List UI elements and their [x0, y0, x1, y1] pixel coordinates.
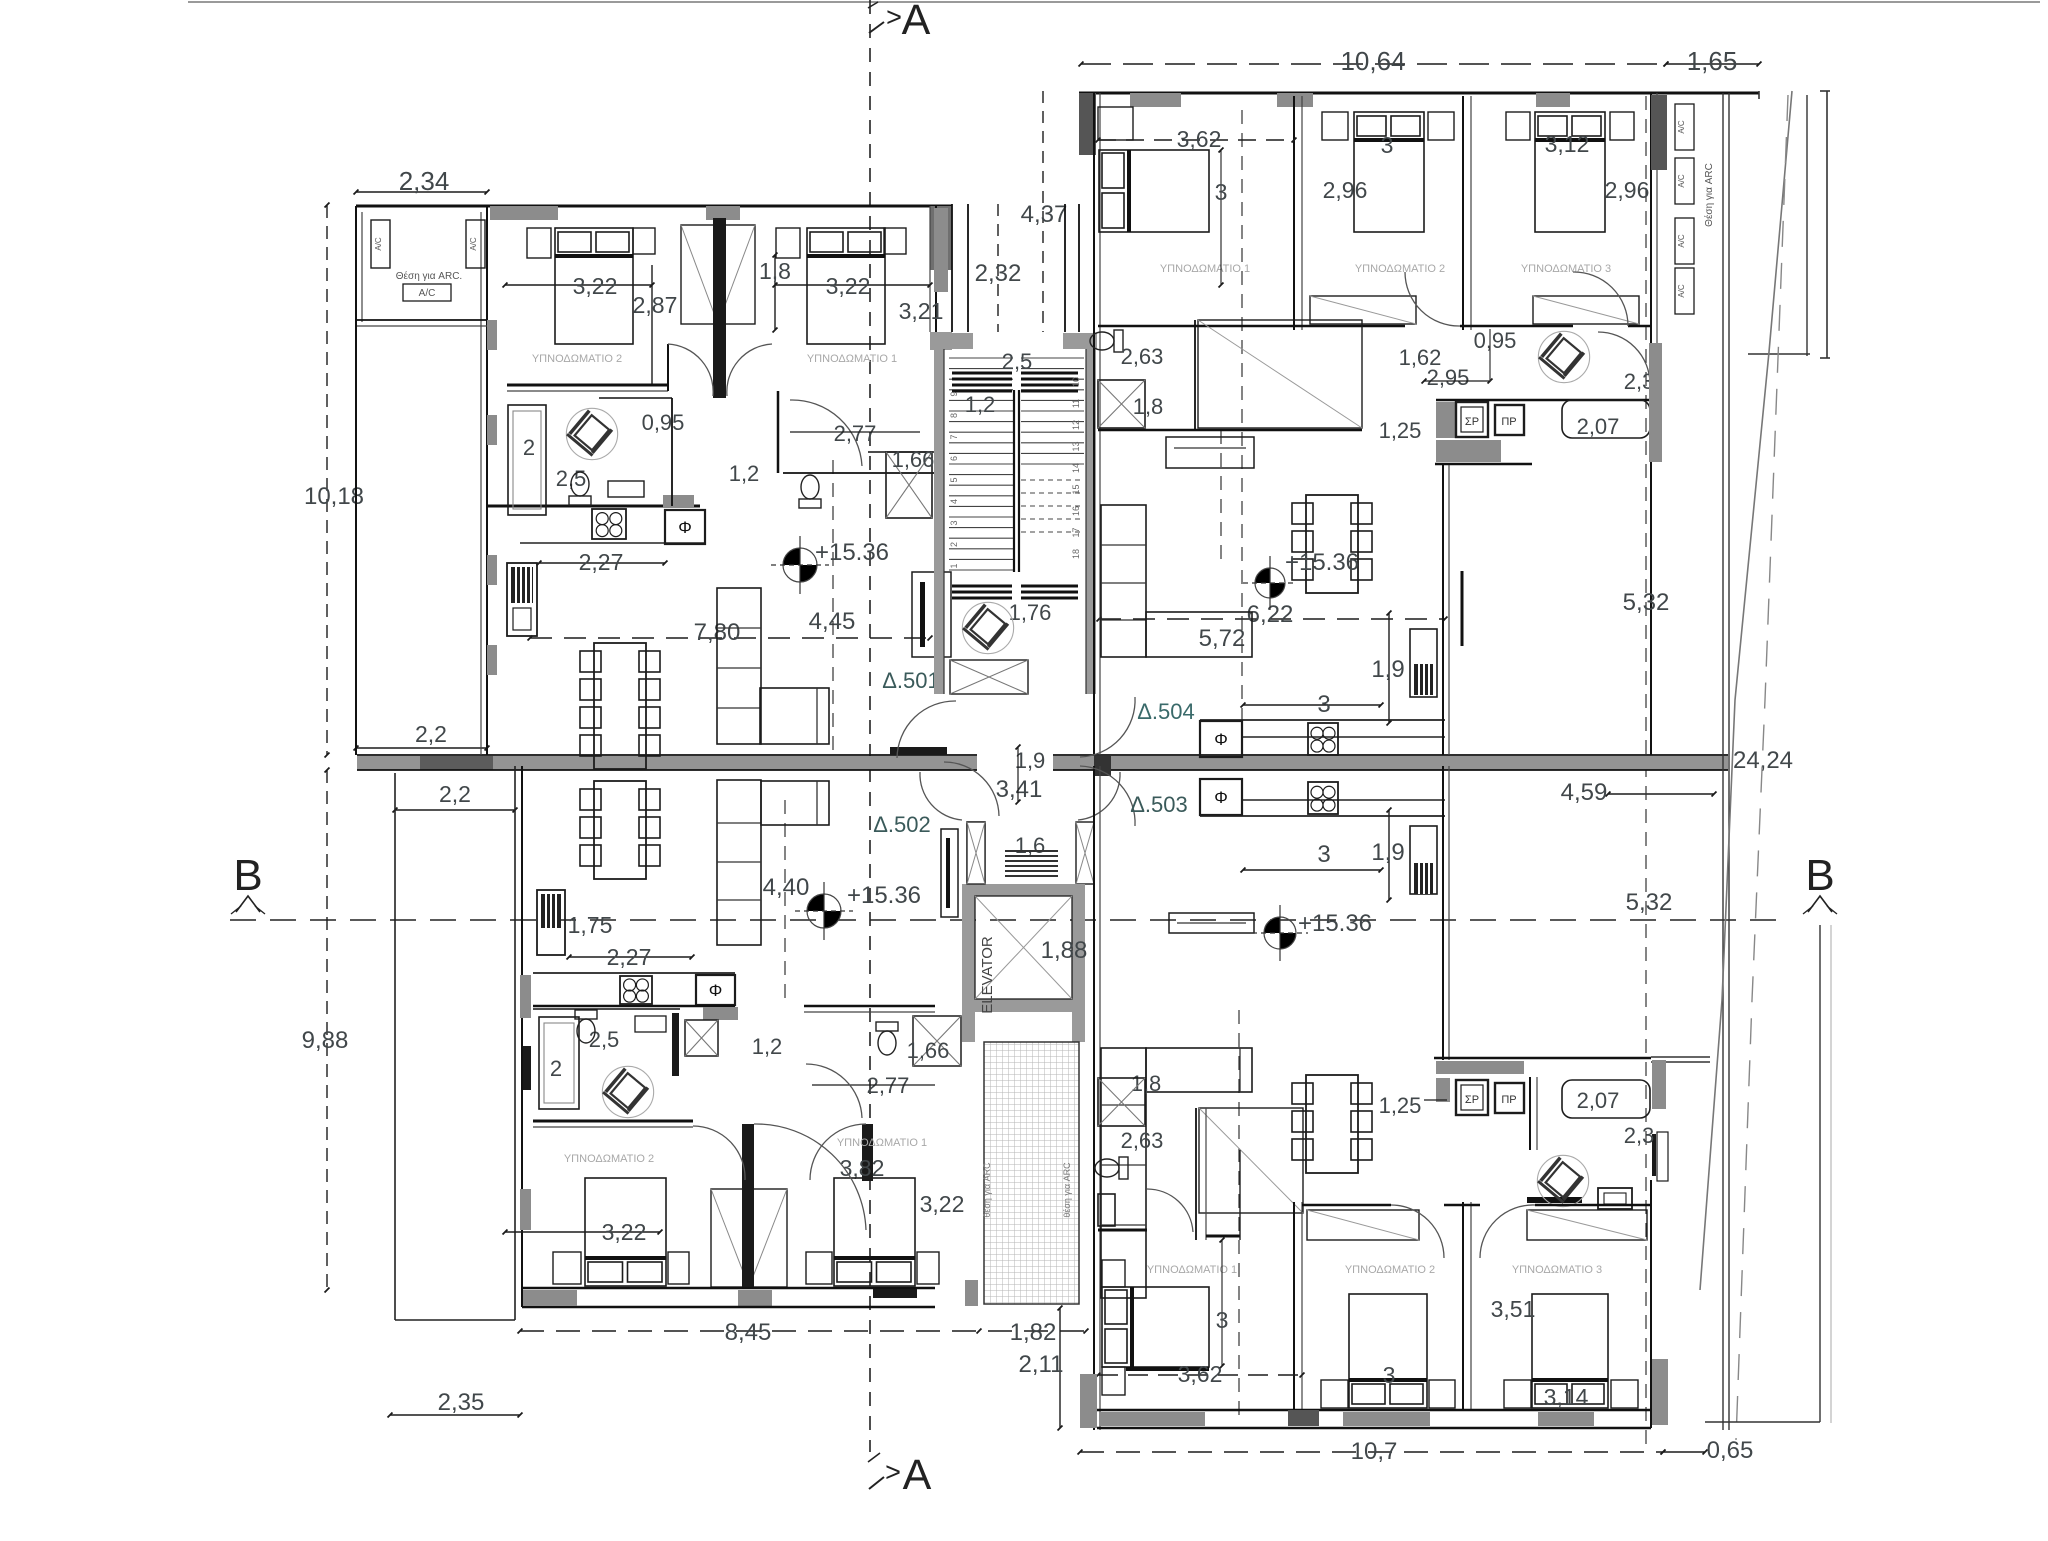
svg-text:7: 7	[949, 434, 959, 439]
svg-text:1,88: 1,88	[1041, 937, 1088, 964]
svg-text:4,45: 4,45	[809, 608, 856, 635]
svg-text:2,27: 2,27	[607, 944, 652, 970]
svg-text:0,65: 0,65	[1707, 1437, 1754, 1464]
svg-text:2: 2	[550, 1056, 562, 1081]
svg-text:ELEVATOR: ELEVATOR	[979, 936, 996, 1014]
svg-text:1,2: 1,2	[752, 1034, 783, 1059]
svg-text:3,82: 3,82	[840, 1155, 885, 1181]
svg-text:2,32: 2,32	[975, 260, 1022, 287]
svg-text:3,41: 3,41	[996, 776, 1043, 803]
svg-text:+15.36: +15.36	[815, 539, 889, 566]
svg-text:θέση για ARC: θέση για ARC	[1062, 1162, 1072, 1218]
svg-text:2,2: 2,2	[415, 721, 447, 747]
svg-text:2,07: 2,07	[1577, 1088, 1620, 1113]
svg-text:2,87: 2,87	[633, 292, 678, 318]
svg-text:3,62: 3,62	[1177, 126, 1222, 152]
svg-text:1,6: 1,6	[1015, 833, 1046, 858]
svg-text:>: >	[885, 1457, 901, 1487]
svg-text:18: 18	[1071, 549, 1081, 559]
svg-text:3,14: 3,14	[1544, 1384, 1589, 1410]
svg-text:2,63: 2,63	[1121, 1128, 1164, 1153]
svg-text:2,27: 2,27	[579, 549, 624, 575]
svg-text:>: >	[886, 2, 902, 32]
svg-text:3,12: 3,12	[1545, 131, 1590, 157]
svg-text:+15.36: +15.36	[1298, 910, 1372, 937]
svg-text:2,5: 2,5	[589, 1027, 620, 1052]
svg-text:ΠΡ: ΠΡ	[1501, 1094, 1516, 1106]
svg-text:1,8: 1,8	[759, 258, 791, 284]
svg-text:3: 3	[1317, 841, 1330, 868]
svg-text:θέση για ARC: θέση για ARC	[982, 1162, 992, 1218]
svg-text:A/C: A/C	[1677, 174, 1686, 188]
svg-text:3,62: 3,62	[1178, 1361, 1223, 1387]
svg-text:11: 11	[1071, 399, 1081, 408]
svg-text:2,34: 2,34	[399, 166, 450, 196]
svg-text:ΠΡ: ΠΡ	[1501, 416, 1516, 428]
svg-text:1,25: 1,25	[1379, 418, 1422, 443]
svg-text:4,40: 4,40	[763, 874, 810, 901]
svg-text:+15.36: +15.36	[1285, 549, 1359, 576]
svg-text:1,66: 1,66	[907, 1038, 950, 1063]
svg-text:1,65: 1,65	[1687, 46, 1738, 76]
svg-text:ΥΠΝΟΔΩΜΑΤΙΟ 1: ΥΠΝΟΔΩΜΑΤΙΟ 1	[807, 353, 897, 365]
svg-text:3: 3	[949, 520, 959, 525]
svg-text:2,63: 2,63	[1121, 344, 1164, 369]
svg-text:1,75: 1,75	[568, 912, 613, 938]
svg-text:1,9: 1,9	[1371, 656, 1404, 683]
svg-text:3,22: 3,22	[826, 273, 871, 299]
svg-text:3,22: 3,22	[573, 273, 618, 299]
svg-text:1,8: 1,8	[1133, 394, 1164, 419]
svg-text:Θέση για ARC.: Θέση για ARC.	[396, 270, 462, 282]
svg-text:2,35: 2,35	[438, 1389, 485, 1416]
svg-text:1,76: 1,76	[1009, 600, 1052, 625]
svg-text:A/C: A/C	[1677, 234, 1686, 248]
svg-text:2,07: 2,07	[1577, 414, 1620, 439]
svg-text:Δ.502: Δ.502	[873, 812, 931, 837]
svg-text:1: 1	[949, 563, 959, 568]
svg-text:16: 16	[1071, 506, 1081, 516]
svg-text:B: B	[1805, 851, 1834, 900]
svg-text:A/C: A/C	[374, 237, 383, 251]
svg-text:Δ.503: Δ.503	[1130, 792, 1188, 817]
svg-text:1,9: 1,9	[1015, 748, 1046, 773]
svg-text:A: A	[903, 1451, 932, 1499]
svg-text:13: 13	[1071, 441, 1081, 451]
svg-text:0,95: 0,95	[642, 410, 685, 435]
svg-text:10: 10	[1071, 377, 1081, 387]
svg-text:14: 14	[1071, 463, 1081, 473]
svg-text:3: 3	[1317, 691, 1330, 718]
svg-text:2,11: 2,11	[1019, 1351, 1064, 1378]
svg-text:Φ: Φ	[678, 518, 692, 537]
svg-text:5,72: 5,72	[1199, 625, 1246, 652]
svg-text:3: 3	[1383, 1362, 1396, 1388]
svg-text:5,32: 5,32	[1626, 889, 1673, 916]
svg-text:ΣΡ: ΣΡ	[1465, 1094, 1479, 1106]
svg-text:ΥΠΝΟΔΩΜΑΤΙΟ 2: ΥΠΝΟΔΩΜΑΤΙΟ 2	[1355, 263, 1445, 275]
svg-text:ΥΠΝΟΔΩΜΑΤΙΟ 2: ΥΠΝΟΔΩΜΑΤΙΟ 2	[532, 353, 622, 365]
svg-text:4: 4	[949, 499, 959, 504]
svg-text:2,2: 2,2	[439, 781, 471, 807]
svg-text:2,96: 2,96	[1605, 177, 1650, 203]
svg-text:Φ: Φ	[709, 981, 723, 1000]
svg-text:2,3: 2,3	[1624, 1123, 1655, 1148]
svg-text:1,66: 1,66	[892, 447, 935, 472]
svg-text:1,25: 1,25	[1379, 1093, 1422, 1118]
svg-text:2,5: 2,5	[1002, 349, 1033, 374]
svg-text:2: 2	[949, 542, 959, 547]
svg-text:2,77: 2,77	[834, 421, 877, 446]
svg-text:3: 3	[1216, 1307, 1229, 1333]
svg-text:ΥΠΝΟΔΩΜΑΤΙΟ 1: ΥΠΝΟΔΩΜΑΤΙΟ 1	[1160, 263, 1250, 275]
svg-text:ΣΡ: ΣΡ	[1465, 416, 1479, 428]
svg-text:Δ.501: Δ.501	[882, 668, 940, 693]
svg-text:10,7: 10,7	[1351, 1438, 1398, 1465]
svg-text:ΥΠΝΟΔΩΜΑΤΙΟ 1: ΥΠΝΟΔΩΜΑΤΙΟ 1	[1147, 1264, 1237, 1276]
svg-text:3: 3	[1381, 132, 1394, 158]
svg-text:1,82: 1,82	[1010, 1319, 1057, 1346]
svg-text:4,59: 4,59	[1561, 779, 1608, 806]
svg-text:8,45: 8,45	[725, 1319, 772, 1346]
svg-text:3,22: 3,22	[920, 1191, 965, 1217]
svg-text:ΥΠΝΟΔΩΜΑΤΙΟ 2: ΥΠΝΟΔΩΜΑΤΙΟ 2	[1345, 1264, 1435, 1276]
svg-text:A/C: A/C	[1677, 120, 1686, 134]
svg-text:Δ.504: Δ.504	[1137, 699, 1195, 724]
svg-text:ΥΠΝΟΔΩΜΑΤΙΟ 3: ΥΠΝΟΔΩΜΑΤΙΟ 3	[1521, 263, 1611, 275]
svg-text:A/C: A/C	[469, 237, 478, 251]
svg-text:24,24: 24,24	[1733, 747, 1793, 774]
svg-text:2,96: 2,96	[1323, 177, 1368, 203]
svg-text:2: 2	[523, 435, 535, 460]
svg-text:1,2: 1,2	[729, 461, 760, 486]
svg-text:9,88: 9,88	[302, 1027, 349, 1054]
svg-text:4,37: 4,37	[1021, 201, 1068, 228]
svg-text:A/C: A/C	[419, 288, 436, 299]
svg-text:12: 12	[1071, 420, 1081, 430]
svg-text:1,2: 1,2	[965, 392, 996, 417]
svg-text:17: 17	[1071, 527, 1081, 537]
svg-text:6: 6	[949, 456, 959, 461]
svg-text:Θέση για ARC: Θέση για ARC	[1703, 163, 1715, 227]
svg-text:5: 5	[949, 477, 959, 482]
svg-text:Φ: Φ	[1214, 730, 1228, 749]
svg-text:9: 9	[949, 391, 959, 396]
svg-text:10,64: 10,64	[1340, 46, 1405, 76]
svg-text:3,51: 3,51	[1491, 1296, 1536, 1322]
svg-text:0,95: 0,95	[1474, 328, 1517, 353]
svg-text:3,21: 3,21	[899, 298, 944, 324]
svg-text:15: 15	[1071, 484, 1081, 494]
svg-text:1,8: 1,8	[1131, 1071, 1162, 1096]
svg-text:B: B	[233, 851, 262, 900]
svg-text:ΥΠΝΟΔΩΜΑΤΙΟ 3: ΥΠΝΟΔΩΜΑΤΙΟ 3	[1512, 1264, 1602, 1276]
svg-text:A: A	[902, 0, 931, 44]
svg-text:2,95: 2,95	[1427, 365, 1470, 390]
svg-text:1,9: 1,9	[1371, 839, 1404, 866]
svg-text:3,22: 3,22	[602, 1219, 647, 1245]
svg-text:+15.36: +15.36	[847, 882, 921, 909]
svg-text:5,32: 5,32	[1623, 589, 1670, 616]
svg-text:8: 8	[949, 413, 959, 418]
svg-text:A/C: A/C	[1677, 284, 1686, 298]
svg-text:Φ: Φ	[1214, 788, 1228, 807]
svg-text:3: 3	[1215, 179, 1228, 205]
svg-text:ΥΠΝΟΔΩΜΑΤΙΟ 1: ΥΠΝΟΔΩΜΑΤΙΟ 1	[837, 1137, 927, 1149]
svg-text:ΥΠΝΟΔΩΜΑΤΙΟ 2: ΥΠΝΟΔΩΜΑΤΙΟ 2	[564, 1153, 654, 1165]
